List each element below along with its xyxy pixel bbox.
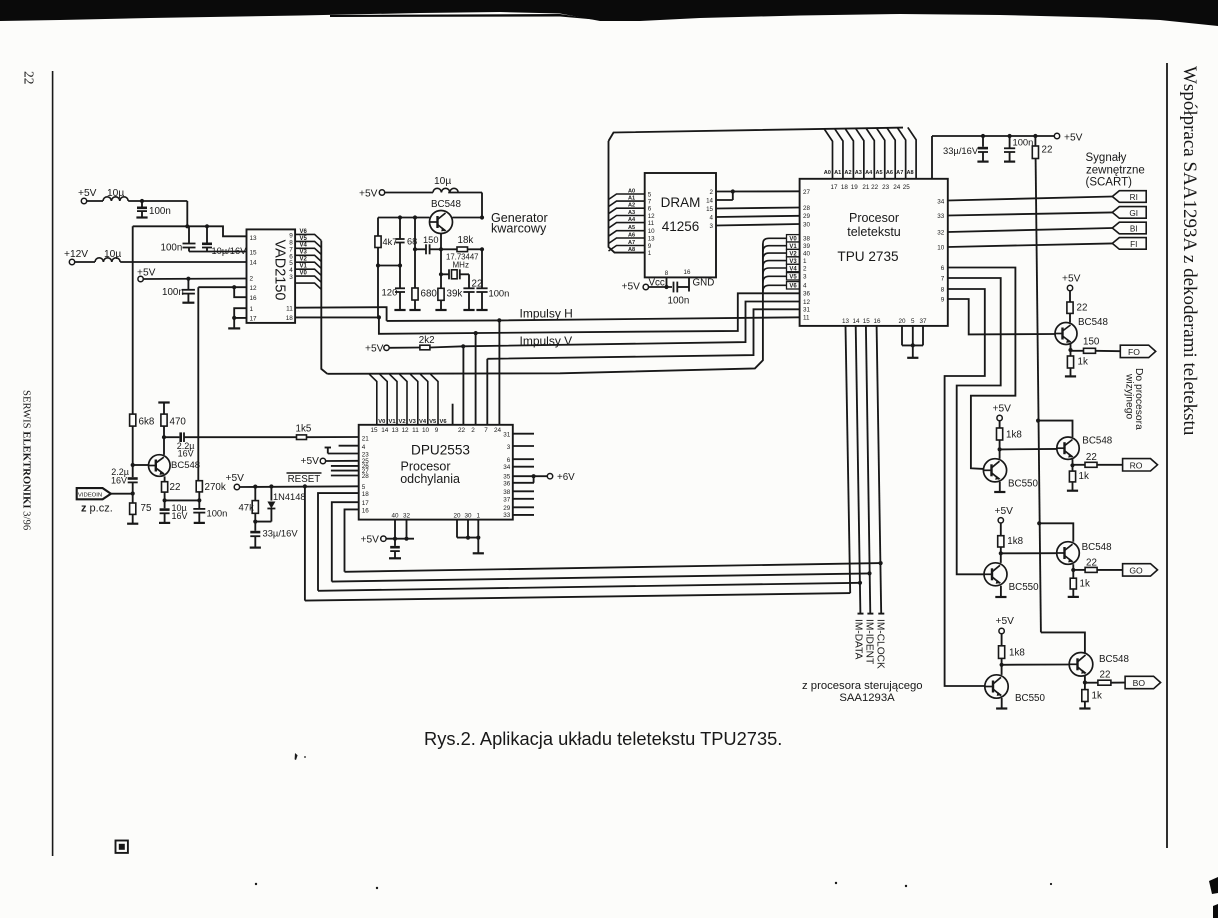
svg-text:8: 8	[941, 287, 945, 294]
svg-text:13: 13	[391, 427, 399, 434]
svg-text:9: 9	[435, 427, 439, 434]
svg-text:1k: 1k	[1080, 579, 1090, 590]
svg-text:IM-CLOCK: IM-CLOCK	[875, 619, 886, 669]
svg-text:2k2: 2k2	[419, 335, 435, 346]
svg-text:12: 12	[250, 285, 258, 292]
svg-text:30: 30	[464, 513, 472, 520]
svg-text:37: 37	[503, 496, 511, 503]
svg-text:A1: A1	[628, 196, 635, 202]
svg-text:100n: 100n	[149, 206, 171, 217]
svg-text:16V: 16V	[178, 449, 194, 459]
svg-text:39: 39	[803, 243, 811, 250]
svg-text:+5V: +5V	[996, 616, 1015, 627]
svg-text:32: 32	[937, 230, 945, 237]
svg-text:25: 25	[903, 184, 911, 191]
svg-text:38: 38	[803, 236, 811, 243]
svg-text:+5V: +5V	[226, 473, 245, 484]
svg-text:1k8: 1k8	[1009, 648, 1025, 659]
svg-text:Impulsy H: Impulsy H	[520, 307, 573, 321]
svg-text:34: 34	[503, 464, 511, 471]
svg-text:VAD2150: VAD2150	[272, 240, 288, 301]
svg-text:BO: BO	[1133, 678, 1146, 688]
svg-text:1: 1	[477, 513, 481, 520]
svg-text:A7: A7	[628, 240, 635, 246]
svg-text:2: 2	[803, 265, 807, 272]
svg-text:+6V: +6V	[557, 472, 575, 483]
svg-text:A8: A8	[907, 170, 914, 176]
svg-text:21: 21	[862, 184, 870, 191]
svg-text:7: 7	[648, 199, 652, 206]
svg-text:Rys.2. Aplikacja układu telete: Rys.2. Aplikacja układu teletekstu TPU27…	[424, 728, 782, 749]
svg-text:1N4148: 1N4148	[273, 492, 306, 502]
svg-text:17: 17	[362, 500, 370, 507]
svg-text:odchylania: odchylania	[400, 472, 460, 486]
svg-text:18: 18	[286, 315, 294, 322]
svg-text:29: 29	[503, 505, 511, 512]
svg-text:40: 40	[803, 250, 811, 257]
svg-text:A2: A2	[628, 203, 635, 209]
svg-text:38: 38	[503, 489, 511, 496]
svg-text:32: 32	[403, 513, 411, 520]
svg-text:680: 680	[421, 289, 438, 300]
svg-text:BC548: BC548	[1082, 542, 1113, 553]
svg-text:+5V: +5V	[995, 506, 1014, 517]
svg-text:Procesor: Procesor	[849, 211, 899, 225]
svg-text:33µ/16V: 33µ/16V	[943, 145, 979, 156]
svg-text:RO: RO	[1130, 460, 1143, 470]
svg-text:11: 11	[648, 220, 655, 227]
svg-text:22: 22	[1100, 670, 1111, 681]
svg-text:22: 22	[1086, 452, 1097, 463]
svg-text:TPU 2735: TPU 2735	[837, 249, 898, 264]
svg-text:A2: A2	[844, 170, 851, 176]
svg-text:11: 11	[412, 427, 419, 434]
svg-text:17: 17	[250, 316, 258, 323]
svg-text:11: 11	[286, 306, 293, 313]
svg-text:3: 3	[710, 223, 714, 230]
svg-text:36: 36	[503, 480, 511, 487]
svg-text:15: 15	[250, 250, 258, 257]
svg-text:+5V: +5V	[301, 456, 320, 467]
svg-text:FI: FI	[1130, 240, 1137, 249]
svg-text:V4: V4	[419, 419, 427, 425]
svg-text:2: 2	[710, 189, 714, 196]
svg-text:+5V: +5V	[361, 535, 380, 546]
svg-text:A6: A6	[628, 233, 635, 239]
svg-text:kwarcowy: kwarcowy	[491, 222, 547, 236]
svg-text:DPU2553: DPU2553	[411, 443, 470, 458]
svg-text:31: 31	[803, 307, 811, 314]
svg-text:V3: V3	[409, 419, 417, 425]
svg-text:1: 1	[803, 258, 807, 265]
svg-text:18k: 18k	[458, 235, 474, 246]
svg-text:13: 13	[842, 318, 850, 325]
svg-text:DRAM: DRAM	[661, 195, 701, 210]
svg-text:75: 75	[141, 503, 152, 514]
svg-text:FO: FO	[1128, 347, 1140, 357]
svg-text:12: 12	[803, 299, 811, 306]
svg-text:7: 7	[941, 276, 945, 283]
svg-text:28: 28	[803, 205, 811, 212]
svg-text:z procesora sterującego: z procesora sterującego	[802, 680, 923, 692]
svg-text:IM-DATA: IM-DATA	[853, 619, 864, 660]
svg-text:9: 9	[648, 243, 652, 250]
svg-text:5: 5	[289, 260, 293, 267]
svg-text:22: 22	[170, 482, 181, 493]
svg-text:A0: A0	[824, 170, 831, 176]
svg-text:+5V: +5V	[78, 188, 97, 199]
svg-text:100n: 100n	[668, 296, 690, 307]
svg-text:37: 37	[919, 318, 927, 325]
svg-text:GO: GO	[1129, 565, 1143, 575]
svg-text:4: 4	[803, 283, 807, 290]
svg-text:13: 13	[648, 236, 655, 243]
svg-text:SERWIS ELEKTRONIKI 3/96: SERWIS ELEKTRONIKI 3/96	[21, 390, 33, 531]
svg-text:30: 30	[803, 221, 811, 228]
svg-text:22: 22	[1042, 145, 1053, 156]
svg-text:(SCART): (SCART)	[1086, 177, 1133, 189]
svg-text:10: 10	[648, 228, 655, 235]
svg-text:12: 12	[401, 427, 409, 434]
svg-text:20: 20	[898, 318, 906, 325]
svg-text:1k: 1k	[1092, 691, 1102, 702]
svg-text:22: 22	[871, 184, 879, 191]
svg-text:16: 16	[684, 269, 691, 276]
svg-text:40: 40	[391, 513, 399, 520]
svg-text:A4: A4	[628, 217, 636, 223]
svg-text:BC548: BC548	[1082, 436, 1113, 447]
svg-text:10µ: 10µ	[434, 176, 451, 187]
svg-text:1k8: 1k8	[1006, 430, 1022, 441]
svg-text:V5: V5	[300, 236, 308, 242]
svg-text:41256: 41256	[662, 219, 700, 234]
svg-text:150: 150	[423, 235, 439, 245]
svg-text:1k5: 1k5	[296, 424, 312, 435]
svg-text:A4: A4	[865, 170, 873, 176]
svg-text:+5V: +5V	[993, 404, 1012, 415]
svg-text:470: 470	[170, 417, 187, 428]
svg-text:teletekstu: teletekstu	[847, 225, 901, 239]
svg-text:100n: 100n	[1013, 136, 1034, 147]
svg-text:1k: 1k	[1079, 471, 1089, 482]
svg-text:2: 2	[471, 427, 475, 434]
svg-text:V0: V0	[300, 271, 308, 277]
svg-text:27: 27	[803, 189, 811, 196]
svg-text:10: 10	[937, 245, 945, 252]
svg-text:RESET: RESET	[288, 474, 321, 485]
svg-text:BC548: BC548	[1078, 317, 1109, 328]
svg-text:18: 18	[841, 184, 849, 191]
svg-text:BI: BI	[1130, 224, 1138, 233]
svg-text:A5: A5	[875, 170, 882, 176]
svg-text:14: 14	[706, 197, 713, 204]
svg-text:20: 20	[453, 513, 461, 520]
svg-text:V6: V6	[439, 419, 447, 425]
svg-text:15: 15	[863, 318, 871, 325]
svg-text:36: 36	[803, 291, 811, 298]
svg-text:100n: 100n	[207, 508, 228, 519]
svg-text:120: 120	[382, 288, 398, 299]
svg-text:V4: V4	[300, 243, 308, 249]
svg-text:MHz: MHz	[453, 261, 469, 270]
svg-text:270k: 270k	[205, 482, 226, 493]
svg-text:6k8: 6k8	[139, 417, 155, 428]
svg-text:18: 18	[362, 491, 370, 498]
svg-text:RI: RI	[1130, 193, 1138, 202]
svg-text:V1: V1	[388, 419, 396, 425]
svg-text:z p.cz.: z p.cz.	[81, 503, 113, 515]
svg-text:V3: V3	[300, 250, 308, 256]
svg-text:100n: 100n	[161, 243, 183, 254]
svg-text:100n: 100n	[489, 288, 510, 299]
svg-text:12: 12	[648, 213, 655, 220]
svg-text:6: 6	[648, 206, 652, 213]
svg-text:+5V: +5V	[622, 282, 641, 293]
svg-text:31: 31	[503, 432, 511, 439]
svg-text:A8: A8	[628, 247, 635, 253]
svg-text:BC548: BC548	[1099, 654, 1130, 665]
svg-text:100n: 100n	[162, 287, 184, 298]
svg-text:4: 4	[710, 214, 714, 221]
svg-text:BC550: BC550	[1009, 582, 1040, 593]
svg-text:Sygnały: Sygnały	[1086, 152, 1127, 164]
svg-text:150: 150	[1083, 337, 1100, 348]
svg-text:29: 29	[803, 213, 811, 220]
svg-text:BC548: BC548	[431, 199, 462, 210]
svg-text:16: 16	[362, 507, 370, 514]
svg-text:V4: V4	[789, 266, 797, 272]
svg-text:+12V: +12V	[64, 249, 88, 260]
svg-text:14: 14	[852, 318, 860, 325]
svg-text:28: 28	[362, 473, 370, 480]
svg-text:+5V: +5V	[365, 344, 384, 355]
svg-text:1k8: 1k8	[1007, 536, 1023, 547]
svg-text:14: 14	[381, 427, 389, 434]
svg-text:39k: 39k	[447, 289, 463, 300]
svg-text:V6: V6	[300, 229, 308, 235]
svg-text:22: 22	[22, 71, 37, 85]
svg-text:+5V: +5V	[1062, 274, 1081, 285]
svg-text:VIDEOIN: VIDEOIN	[78, 493, 102, 499]
svg-text:+5V: +5V	[1064, 133, 1083, 144]
svg-text:5: 5	[362, 484, 366, 491]
svg-text:V1: V1	[300, 264, 308, 270]
svg-text:21: 21	[362, 436, 370, 443]
svg-text:24: 24	[893, 184, 901, 191]
svg-text:3: 3	[289, 274, 293, 281]
svg-text:GND: GND	[693, 278, 715, 289]
svg-text:A6: A6	[886, 170, 893, 176]
svg-text:4k7: 4k7	[383, 237, 398, 247]
svg-text:+5V: +5V	[359, 189, 378, 200]
svg-text:24: 24	[494, 427, 502, 434]
svg-text:11: 11	[803, 314, 810, 321]
svg-text:34: 34	[937, 198, 945, 205]
svg-text:9: 9	[289, 232, 293, 239]
svg-text:A0: A0	[628, 189, 635, 195]
svg-text:V2: V2	[398, 419, 405, 425]
svg-text:15: 15	[370, 427, 378, 434]
svg-text:BC548: BC548	[171, 460, 200, 471]
svg-text:9: 9	[941, 297, 945, 304]
svg-text:2: 2	[250, 276, 254, 283]
svg-text:V5: V5	[429, 419, 437, 425]
svg-text:10: 10	[422, 427, 430, 434]
svg-text:16V: 16V	[172, 511, 188, 521]
svg-text:V5: V5	[789, 275, 797, 281]
svg-text:zewnętrzne: zewnętrzne	[1086, 164, 1145, 176]
svg-text:22: 22	[458, 427, 466, 434]
svg-text:19: 19	[851, 184, 859, 191]
svg-text:33: 33	[503, 512, 511, 519]
svg-text:BC550: BC550	[1008, 479, 1039, 490]
svg-text:33: 33	[937, 213, 945, 220]
svg-text:8: 8	[665, 270, 669, 277]
svg-text:3: 3	[507, 444, 511, 451]
svg-text:wizyjnego: wizyjnego	[1124, 373, 1135, 419]
svg-text:1: 1	[250, 306, 254, 313]
svg-text:A7: A7	[896, 170, 903, 176]
svg-text:A3: A3	[855, 170, 862, 176]
svg-text:23: 23	[882, 184, 890, 191]
svg-text:IM-IDENT: IM-IDENT	[863, 619, 874, 664]
svg-text:15: 15	[706, 206, 713, 213]
svg-text:16: 16	[250, 295, 258, 302]
svg-text:14: 14	[250, 260, 258, 267]
svg-text:7: 7	[289, 246, 293, 253]
svg-text:22: 22	[1086, 558, 1097, 569]
svg-text:Współpraca SAA1293A z dekodera: Współpraca SAA1293A z dekoderami teletek…	[1179, 66, 1200, 436]
svg-text:1k: 1k	[1078, 357, 1088, 368]
svg-text:22: 22	[1077, 303, 1088, 314]
svg-text:V2: V2	[300, 257, 308, 263]
svg-text:4: 4	[362, 444, 366, 451]
svg-text:V0: V0	[378, 419, 385, 425]
svg-text:6: 6	[507, 457, 511, 464]
svg-text:3: 3	[803, 274, 807, 281]
svg-text:V6: V6	[789, 284, 797, 290]
svg-text:5: 5	[648, 192, 652, 199]
svg-text:16: 16	[873, 318, 881, 325]
svg-text:GI: GI	[1129, 209, 1138, 218]
svg-text:17: 17	[830, 184, 838, 191]
svg-text:16V: 16V	[111, 476, 127, 486]
svg-text:A1: A1	[834, 170, 841, 176]
svg-text:13: 13	[250, 235, 258, 242]
svg-text:BC550: BC550	[1015, 693, 1046, 704]
svg-text:A3: A3	[628, 210, 635, 216]
svg-text:6: 6	[941, 265, 945, 272]
svg-text:5: 5	[911, 318, 915, 325]
svg-text:7: 7	[484, 427, 488, 434]
svg-text:SAA1293A: SAA1293A	[839, 692, 895, 704]
svg-text:1: 1	[648, 250, 652, 257]
svg-text:33µ/16V: 33µ/16V	[263, 528, 299, 539]
svg-text:A5: A5	[628, 225, 635, 231]
svg-text:47k: 47k	[239, 503, 255, 514]
